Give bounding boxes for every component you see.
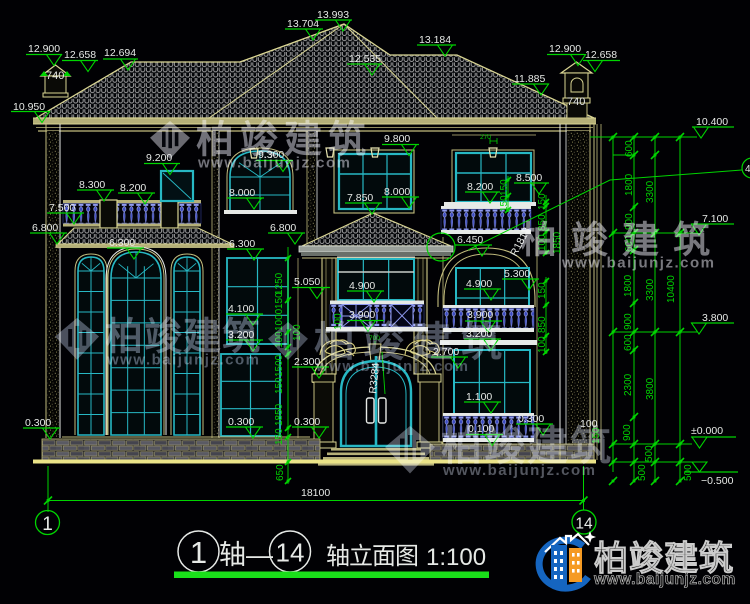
svg-text:500: 500 [683,464,694,481]
svg-text:12.694: 12.694 [104,47,136,59]
svg-text:www.baijunjz.com: www.baijunjz.com [106,351,260,368]
svg-text:1250: 1250 [274,272,285,295]
svg-text:8.200: 8.200 [120,182,146,194]
svg-text:600: 600 [624,140,635,157]
svg-text:13.993: 13.993 [317,9,349,21]
svg-text:4.900: 4.900 [349,280,375,292]
svg-text:740: 740 [46,70,64,82]
svg-text:14: 14 [575,516,593,533]
svg-text:11.885: 11.885 [514,73,545,85]
svg-text:12.900: 12.900 [549,43,581,55]
svg-text:1850: 1850 [274,403,285,426]
svg-text:3.800: 3.800 [702,312,728,324]
svg-text:500: 500 [637,464,648,481]
svg-text:6.300: 6.300 [229,238,255,250]
svg-text:150: 150 [274,377,285,394]
svg-text:www.baijunjz.com: www.baijunjz.com [315,358,469,375]
svg-text:轴立面图: 轴立面图 [326,543,418,570]
svg-text:2300: 2300 [623,373,634,396]
svg-text:1: 1 [42,514,53,535]
svg-text:850: 850 [537,316,548,333]
svg-text:5.050: 5.050 [294,276,320,288]
svg-text:www.baijunjz.com: www.baijunjz.com [197,154,351,171]
svg-text:−0.500: −0.500 [701,475,734,487]
svg-text:4.100: 4.100 [228,303,254,315]
svg-text:900: 900 [622,424,633,441]
svg-text:12.900: 12.900 [28,43,60,55]
svg-text:1.100: 1.100 [466,391,492,403]
svg-text:150: 150 [537,193,548,210]
svg-text:1800: 1800 [624,173,635,196]
svg-text:100: 100 [537,336,548,353]
svg-text:0.300: 0.300 [228,416,254,428]
svg-text:10400: 10400 [666,275,677,303]
svg-text:6.800: 6.800 [32,222,58,234]
svg-text:1: 1 [190,535,207,570]
svg-text:±0.000: ±0.000 [691,425,723,437]
svg-text:600: 600 [623,334,634,351]
svg-text:150: 150 [499,195,510,212]
svg-text:7.500: 7.500 [49,202,75,214]
svg-text:150: 150 [537,282,548,299]
svg-text:8.000: 8.000 [229,187,255,199]
svg-text:12.658: 12.658 [64,49,96,61]
svg-text:1:100: 1:100 [426,544,486,571]
svg-text:1500: 1500 [274,354,285,377]
svg-text:www.baijunjz.com: www.baijunjz.com [593,571,736,588]
svg-text:10.400: 10.400 [696,116,728,128]
svg-text:900: 900 [623,313,634,330]
svg-text:轴—: 轴— [219,540,273,570]
svg-text:650: 650 [275,464,286,481]
svg-text:4: 4 [745,164,750,175]
svg-text:12.658: 12.658 [585,49,617,61]
svg-text:www.baijunjz.com: www.baijunjz.com [561,255,715,272]
svg-text:9.800: 9.800 [384,133,410,145]
svg-text:4.900: 4.900 [466,278,492,290]
svg-text:740: 740 [567,96,585,108]
svg-text:18100: 18100 [301,487,330,499]
svg-text:3800: 3800 [645,377,656,400]
svg-text:8.500: 8.500 [516,172,542,184]
svg-text:12.535: 12.535 [349,53,381,65]
svg-text:0.300: 0.300 [294,416,320,428]
svg-text:www.baijunjz.com: www.baijunjz.com [442,462,596,479]
svg-text:8.300: 8.300 [79,179,105,191]
svg-text:13.184: 13.184 [419,34,451,46]
svg-text:3300: 3300 [645,278,656,301]
svg-text:6.300: 6.300 [109,237,135,249]
svg-text:8.200: 8.200 [467,181,493,193]
svg-text:6.800: 6.800 [270,222,296,234]
svg-text:8.000: 8.000 [384,186,410,198]
svg-text:150: 150 [274,428,285,445]
svg-text:14: 14 [276,538,305,568]
svg-text:3300: 3300 [645,180,656,203]
svg-text:150: 150 [274,292,285,309]
svg-text:270: 270 [480,134,491,141]
svg-text:5.300: 5.300 [504,268,530,280]
svg-text:500: 500 [644,445,655,462]
svg-text:7.850: 7.850 [347,192,373,204]
svg-text:0.300: 0.300 [25,417,51,429]
svg-text:150: 150 [499,179,510,196]
svg-text:1800: 1800 [623,274,634,297]
svg-text:13.704: 13.704 [287,18,319,30]
